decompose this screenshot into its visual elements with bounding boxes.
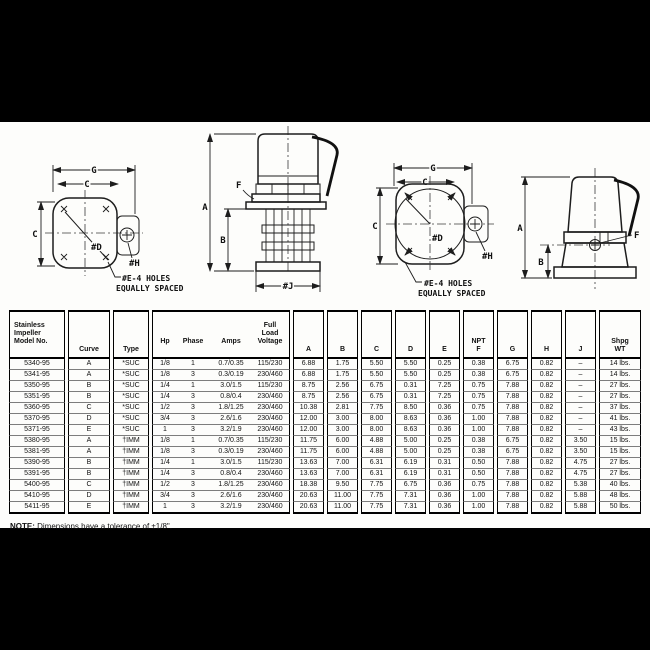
amps-value: 2.6/1.6 [209,491,253,501]
phase-value: 3 [177,425,209,435]
wt-cell: 50 lbs. [599,502,641,514]
wt-cell: 41 lbs. [599,414,641,425]
e-cell: 0.31 [429,469,460,480]
curve-cell: B [68,458,110,469]
curve-cell: B [68,469,110,480]
j-cell: – [565,381,596,392]
d-cell: 8.50 [395,403,426,414]
type-cell: *SUC [113,359,149,370]
phase-value: 3 [177,403,209,413]
f-cell: 0.75 [463,381,494,392]
header-phase: Phase [177,338,209,346]
a-cell: 11.75 [293,447,324,458]
table-row: 5380-95A†IMM1/810.7/0.35115/23011.756.00… [9,436,641,447]
dim-label-g: G [91,166,96,176]
type-cell: *SUC [113,425,149,436]
pump-side-view-drawing-2: F A B [512,144,650,307]
wt-cell: 14 lbs. [599,370,641,381]
dim-label-c-left: C [32,230,37,240]
c-cell: 4.88 [361,447,392,458]
curve-cell: D [68,414,110,425]
b-cell: 11.00 [327,491,358,502]
h-cell: 0.82 [531,458,562,469]
header-electrical-group: Hp Phase Amps Full Load Voltage [152,310,290,359]
c-cell: 7.75 [361,403,392,414]
hp-value: 1/8 [153,370,177,380]
table-row: 5410-95D†IMM3/432.6/1.6230/46020.6311.00… [9,491,641,502]
dim-label-h: #H [129,259,140,269]
hp-value: 1/4 [153,392,177,402]
f-cell: 0.38 [463,436,494,447]
amps-value: 3.2/1.9 [209,425,253,435]
header-dim-g: G [497,310,528,359]
table-row: 5350-95B*SUC1/413.0/1.5115/2308.752.566.… [9,381,641,392]
model-cell: 5370-95 [9,414,65,425]
model-cell: 5341-95 [9,370,65,381]
curve-cell: B [68,392,110,403]
wt-cell: 15 lbs. [599,436,641,447]
voltage-value: 115/230 [253,381,287,391]
a-cell: 10.38 [293,403,324,414]
voltage-value: 230/460 [253,480,287,490]
f-cell: 0.50 [463,458,494,469]
table-row: 5400-95C†IMM1/231.8/1.25230/46018.389.50… [9,480,641,491]
table-row: 5341-95A*SUC1/830.3/0.19230/4606.881.755… [9,370,641,381]
voltage-value: 230/460 [253,425,287,435]
electrical-group-cell: 1/810.7/0.35115/230 [152,359,290,370]
note-label: NOTE: [10,522,35,531]
dim-label-d: #D [91,243,102,253]
amps-value: 2.6/1.6 [209,414,253,424]
d-cell: 7.31 [395,491,426,502]
electrical-group-cell: 1/231.8/1.25230/460 [152,480,290,491]
j-cell: 5.88 [565,502,596,514]
dim-label-d: #D [432,234,443,244]
tolerance-note: NOTE: Dimensions have a tolerance of ±1/… [10,522,650,531]
table-row: 5390-95B†IMM1/413.0/1.5115/23013.637.006… [9,458,641,469]
curve-cell: D [68,491,110,502]
motor-outline [568,177,638,236]
b-cell: 2.56 [327,381,358,392]
voltage-value: 115/230 [253,436,287,446]
hp-value: 1/4 [153,458,177,468]
header-curve: Curve [68,310,110,359]
j-cell: – [565,425,596,436]
e-cell: 0.25 [429,370,460,381]
table-row: 5360-95C*SUC1/231.8/1.25230/46010.382.81… [9,403,641,414]
lifting-handle [614,180,638,236]
electrical-group-cell: 3/432.6/1.6230/460 [152,414,290,425]
phase-value: 1 [177,381,209,391]
j-cell: 3.50 [565,436,596,447]
j-cell: 4.75 [565,458,596,469]
g-cell: 6.75 [497,436,528,447]
letterbox-bottom [0,528,650,650]
header-dim-d: D [395,310,426,359]
curve-cell: C [68,480,110,491]
curve-cell: A [68,447,110,458]
type-cell: *SUC [113,414,149,425]
table-row: 5351-95B*SUC1/430.8/0.4230/4608.752.566.… [9,392,641,403]
wt-cell: 40 lbs. [599,480,641,491]
curve-cell: A [68,370,110,381]
amps-value: 0.3/0.19 [209,447,253,457]
hp-value: 1/2 [153,403,177,413]
b-cell: 7.00 [327,458,358,469]
pump-body-outline [386,176,494,272]
amps-value: 3.0/1.5 [209,381,253,391]
curve-cell: A [68,436,110,447]
voltage-value: 115/230 [253,458,287,468]
h-cell: 0.82 [531,469,562,480]
a-cell: 6.88 [293,370,324,381]
e-cell: 0.36 [429,425,460,436]
model-cell: 5351-95 [9,392,65,403]
voltage-value: 230/460 [253,491,287,501]
pump-top-view-drawing-2: G C C #D #H #E-4 HOLES EQUAL [372,142,522,307]
g-cell: 6.75 [497,370,528,381]
amps-value: 3.2/1.9 [209,502,253,512]
wt-cell: 43 lbs. [599,425,641,436]
pump-side-view-drawing-1: F A B #J [200,122,352,308]
b-cell: 7.00 [327,469,358,480]
h-cell: 0.82 [531,359,562,370]
h-cell: 0.82 [531,370,562,381]
table-row: 5371-95E*SUC133.2/1.9230/46012.003.008.0… [9,425,641,436]
pump-top-view-drawing-1: G C C #D #H #E-4 HOLES EQUALLY SPACED [25,144,200,306]
h-cell: 0.82 [531,447,562,458]
b-cell: 1.75 [327,359,358,370]
e-cell: 7.25 [429,381,460,392]
type-cell: †IMM [113,491,149,502]
wt-cell: 48 lbs. [599,491,641,502]
g-cell: 7.88 [497,414,528,425]
phase-value: 3 [177,447,209,457]
type-cell: †IMM [113,458,149,469]
model-cell: 5400-95 [9,480,65,491]
c-cell: 4.88 [361,436,392,447]
hp-value: 1/2 [153,480,177,490]
dim-label-h: #H [482,252,493,262]
type-cell: †IMM [113,436,149,447]
amps-value: 1.8/1.25 [209,480,253,490]
f-cell: 0.75 [463,480,494,491]
dim-label-c-left: C [372,222,377,232]
type-cell: *SUC [113,392,149,403]
spec-table-body: 5340-95A*SUC1/810.7/0.35115/2306.881.755… [9,359,641,514]
dim-label-f: F [634,231,639,241]
h-cell: 0.82 [531,436,562,447]
phase-value: 1 [177,458,209,468]
model-cell: 5371-95 [9,425,65,436]
b-cell: 11.00 [327,502,358,514]
g-cell: 7.88 [497,425,528,436]
d-cell: 5.50 [395,359,426,370]
curve-cell: E [68,502,110,514]
j-cell: 5.88 [565,491,596,502]
a-cell: 11.75 [293,436,324,447]
dim-label-j: #J [283,282,294,292]
g-cell: 7.88 [497,502,528,514]
header-row: Stainless Impeller Model No. Curve Type … [9,310,641,359]
voltage-value: 230/460 [253,403,287,413]
header-type: Type [113,310,149,359]
letterbox-top [0,0,650,122]
model-cell: 5350-95 [9,381,65,392]
d-cell: 6.19 [395,469,426,480]
table-row: 5381-95A†IMM1/830.3/0.19230/46011.756.00… [9,447,641,458]
electrical-group-cell: 1/830.3/0.19230/460 [152,370,290,381]
model-cell: 5390-95 [9,458,65,469]
d-cell: 8.63 [395,425,426,436]
phase-value: 3 [177,469,209,479]
phase-value: 3 [177,392,209,402]
a-cell: 20.63 [293,502,324,514]
h-cell: 0.82 [531,392,562,403]
amps-value: 1.8/1.25 [209,403,253,413]
holes-note-line2: EQUALLY SPACED [116,284,184,293]
wt-cell: 27 lbs. [599,392,641,403]
electrical-group-cell: 1/231.8/1.25230/460 [152,403,290,414]
header-dim-h: H [531,310,562,359]
electrical-group-cell: 1/430.8/0.4230/460 [152,392,290,403]
header-shpg-wt: Shpg WT [599,310,641,359]
type-cell: †IMM [113,502,149,514]
hp-value: 1/4 [153,381,177,391]
type-cell: †IMM [113,447,149,458]
hp-value: 3/4 [153,414,177,424]
model-cell: 5360-95 [9,403,65,414]
motor-outline [256,134,337,196]
f-cell: 0.75 [463,403,494,414]
note-text: Dimensions have a tolerance of ±1/8". [37,522,172,531]
voltage-value: 230/460 [253,502,287,512]
wt-cell: 14 lbs. [599,359,641,370]
c-cell: 7.75 [361,502,392,514]
phase-value: 1 [177,436,209,446]
voltage-value: 230/460 [253,447,287,457]
g-cell: 7.88 [497,491,528,502]
type-cell: *SUC [113,381,149,392]
h-cell: 0.82 [531,381,562,392]
h-cell: 0.82 [531,491,562,502]
a-cell: 12.00 [293,414,324,425]
header-npt-f: NPT F [463,310,494,359]
hp-value: 1/8 [153,359,177,369]
e-cell: 0.31 [429,458,460,469]
hp-value: 1/4 [153,469,177,479]
header-dim-a: A [293,310,324,359]
h-cell: 0.82 [531,480,562,491]
hp-value: 1/8 [153,436,177,446]
a-cell: 13.63 [293,458,324,469]
voltage-value: 230/460 [253,414,287,424]
electrical-group-cell: 3/432.6/1.6230/460 [152,491,290,502]
f-cell: 1.00 [463,502,494,514]
h-cell: 0.82 [531,414,562,425]
hp-value: 1 [153,425,177,435]
e-cell: 7.25 [429,392,460,403]
a-cell: 13.63 [293,469,324,480]
c-cell: 7.75 [361,480,392,491]
j-cell: 4.75 [565,469,596,480]
hp-value: 3/4 [153,491,177,501]
f-cell: 1.00 [463,414,494,425]
voltage-value: 230/460 [253,392,287,402]
f-cell: 0.38 [463,447,494,458]
phase-value: 3 [177,480,209,490]
dim-label-b: B [538,258,544,268]
electrical-group-cell: 1/430.8/0.4230/460 [152,469,290,480]
b-cell: 3.00 [327,414,358,425]
phase-value: 3 [177,414,209,424]
curve-cell: B [68,381,110,392]
lifting-handle [312,137,337,196]
j-cell: – [565,370,596,381]
c-cell: 8.00 [361,414,392,425]
wt-cell: 27 lbs. [599,381,641,392]
c-cell: 5.50 [361,370,392,381]
wt-cell: 27 lbs. [599,458,641,469]
header-dim-c: C [361,310,392,359]
c-cell: 8.00 [361,425,392,436]
h-cell: 0.82 [531,502,562,514]
h-cell: 0.82 [531,403,562,414]
b-cell: 9.50 [327,480,358,491]
b-cell: 2.81 [327,403,358,414]
dim-label-b: B [220,236,226,246]
table-row: 5340-95A*SUC1/810.7/0.35115/2306.881.755… [9,359,641,370]
amps-value: 0.8/0.4 [209,392,253,402]
header-dim-b: B [327,310,358,359]
header-voltage: Full Load Voltage [253,322,287,346]
f-cell: 1.00 [463,491,494,502]
header-hp: Hp [153,338,177,346]
table-row: 5391-95B†IMM1/430.8/0.4230/46013.637.006… [9,469,641,480]
dim-label-a: A [202,203,208,213]
type-cell: †IMM [113,480,149,491]
g-cell: 7.88 [497,458,528,469]
curve-cell: E [68,425,110,436]
g-cell: 7.88 [497,392,528,403]
g-cell: 7.88 [497,480,528,491]
model-cell: 5381-95 [9,447,65,458]
type-cell: †IMM [113,469,149,480]
e-cell: 0.25 [429,447,460,458]
hp-value: 1 [153,502,177,512]
model-cell: 5411-95 [9,502,65,514]
e-cell: 0.36 [429,502,460,514]
d-cell: 8.63 [395,414,426,425]
a-cell: 12.00 [293,425,324,436]
a-cell: 8.75 [293,392,324,403]
d-cell: 5.00 [395,447,426,458]
phase-value: 1 [177,359,209,369]
j-cell: – [565,359,596,370]
j-cell: – [565,414,596,425]
header-model: Stainless Impeller Model No. [9,310,65,359]
c-cell: 6.31 [361,469,392,480]
dimension-lines [210,134,320,292]
electrical-group-cell: 1/830.3/0.19230/460 [152,447,290,458]
spec-table: Stainless Impeller Model No. Curve Type … [6,310,644,514]
a-cell: 20.63 [293,491,324,502]
wt-cell: 27 lbs. [599,469,641,480]
a-cell: 6.88 [293,359,324,370]
d-cell: 5.00 [395,436,426,447]
d-cell: 6.19 [395,458,426,469]
electrical-group-cell: 1/413.0/1.5115/230 [152,381,290,392]
model-cell: 5391-95 [9,469,65,480]
d-cell: 6.75 [395,480,426,491]
e-cell: 0.25 [429,436,460,447]
b-cell: 3.00 [327,425,358,436]
d-cell: 0.31 [395,381,426,392]
f-cell: 0.75 [463,392,494,403]
model-cell: 5380-95 [9,436,65,447]
h-cell: 0.82 [531,425,562,436]
g-cell: 7.88 [497,381,528,392]
c-cell: 6.75 [361,392,392,403]
curve-cell: A [68,359,110,370]
a-cell: 18.38 [293,480,324,491]
electrical-group-cell: 133.2/1.9230/460 [152,502,290,514]
table-row: 5411-95E†IMM133.2/1.9230/46020.6311.007.… [9,502,641,514]
g-cell: 6.75 [497,359,528,370]
j-cell: – [565,403,596,414]
model-cell: 5410-95 [9,491,65,502]
amps-value: 0.7/0.35 [209,436,253,446]
wt-cell: 37 lbs. [599,403,641,414]
wt-cell: 15 lbs. [599,447,641,458]
phase-value: 3 [177,370,209,380]
type-cell: *SUC [113,403,149,414]
j-cell: 3.50 [565,447,596,458]
b-cell: 2.56 [327,392,358,403]
e-cell: 0.25 [429,359,460,370]
b-cell: 6.00 [327,436,358,447]
c-cell: 6.75 [361,381,392,392]
amps-value: 0.3/0.19 [209,370,253,380]
dim-label-g: G [430,164,435,174]
f-cell: 0.38 [463,359,494,370]
g-cell: 7.88 [497,403,528,414]
header-dim-j: J [565,310,596,359]
j-cell: 5.38 [565,480,596,491]
table-row: 5370-95D*SUC3/432.6/1.6230/46012.003.008… [9,414,641,425]
f-cell: 0.38 [463,370,494,381]
j-cell: – [565,392,596,403]
amps-value: 0.7/0.35 [209,359,253,369]
dim-label-c-top: C [422,178,427,188]
e-cell: 0.36 [429,414,460,425]
holes-note-line1: #E-4 HOLES [424,279,472,288]
dimension-drawings: G C C #D #H #E-4 HOLES EQUALLY SPACED [0,122,650,308]
b-cell: 1.75 [327,370,358,381]
g-cell: 6.75 [497,447,528,458]
e-cell: 0.36 [429,480,460,491]
d-cell: 0.31 [395,392,426,403]
voltage-value: 230/460 [253,469,287,479]
a-cell: 8.75 [293,381,324,392]
c-cell: 7.75 [361,491,392,502]
electrical-group-cell: 1/413.0/1.5115/230 [152,458,290,469]
model-cell: 5340-95 [9,359,65,370]
curve-cell: C [68,403,110,414]
amps-value: 0.8/0.4 [209,469,253,479]
phase-value: 3 [177,502,209,512]
c-cell: 6.31 [361,458,392,469]
